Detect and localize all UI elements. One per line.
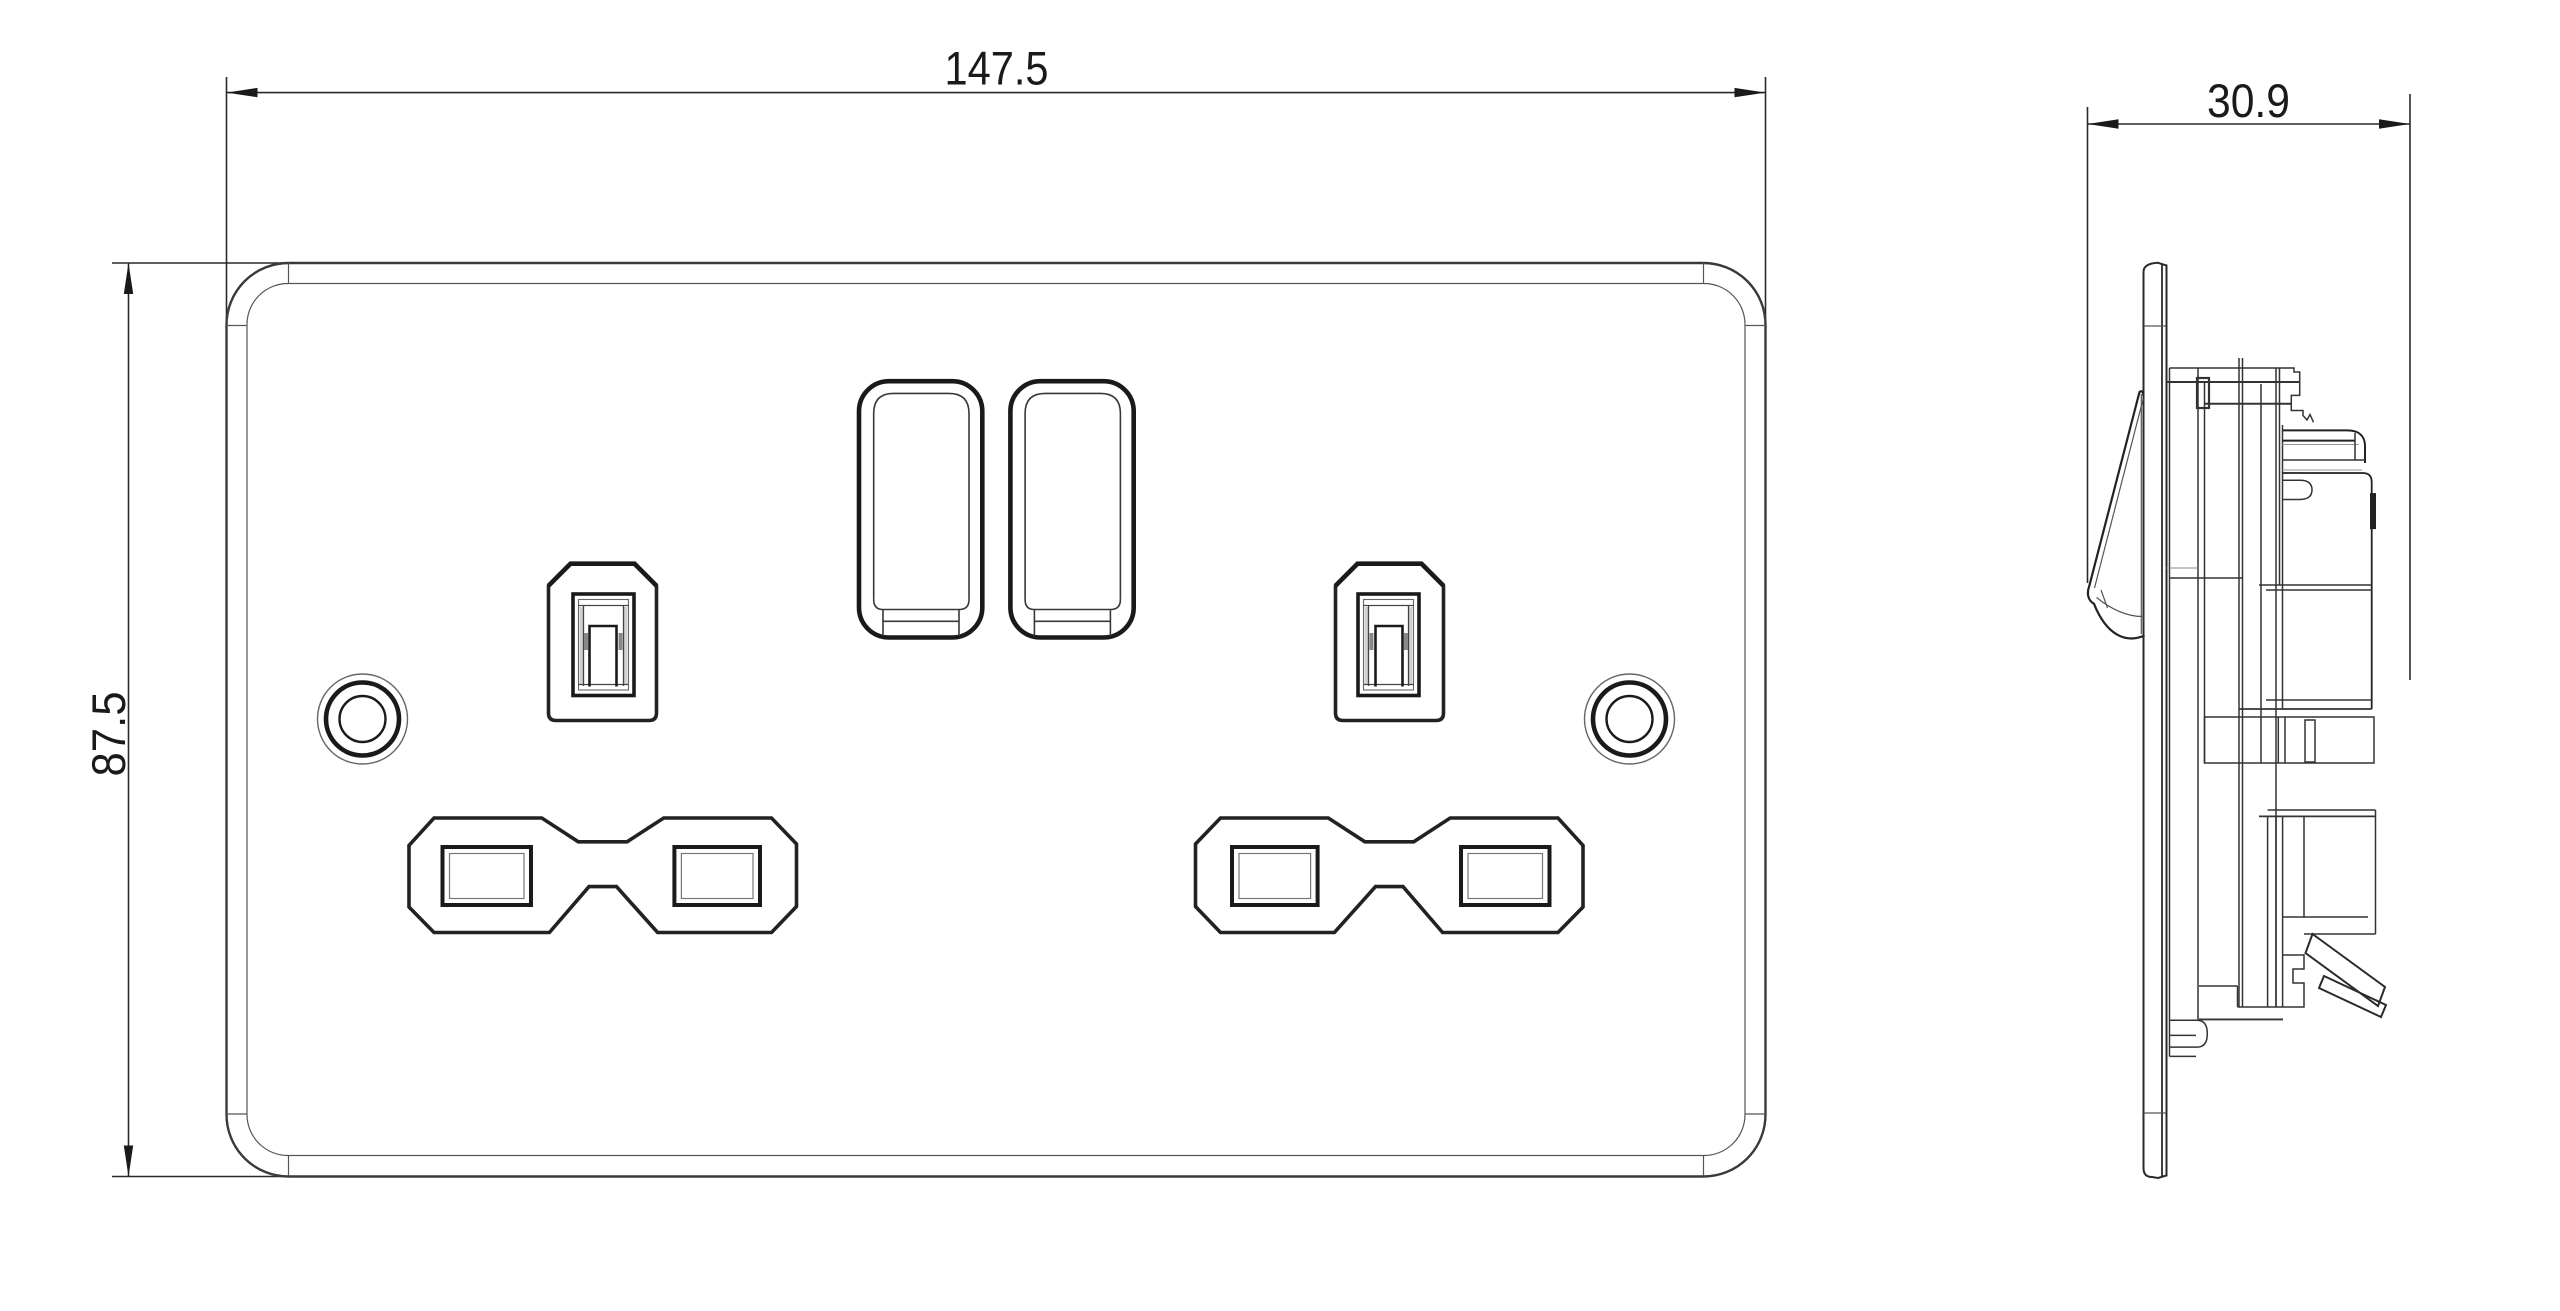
svg-text:87.5: 87.5 [82,692,135,777]
svg-text:30.9: 30.9 [2207,74,2290,127]
svg-text:147.5: 147.5 [945,42,1049,95]
